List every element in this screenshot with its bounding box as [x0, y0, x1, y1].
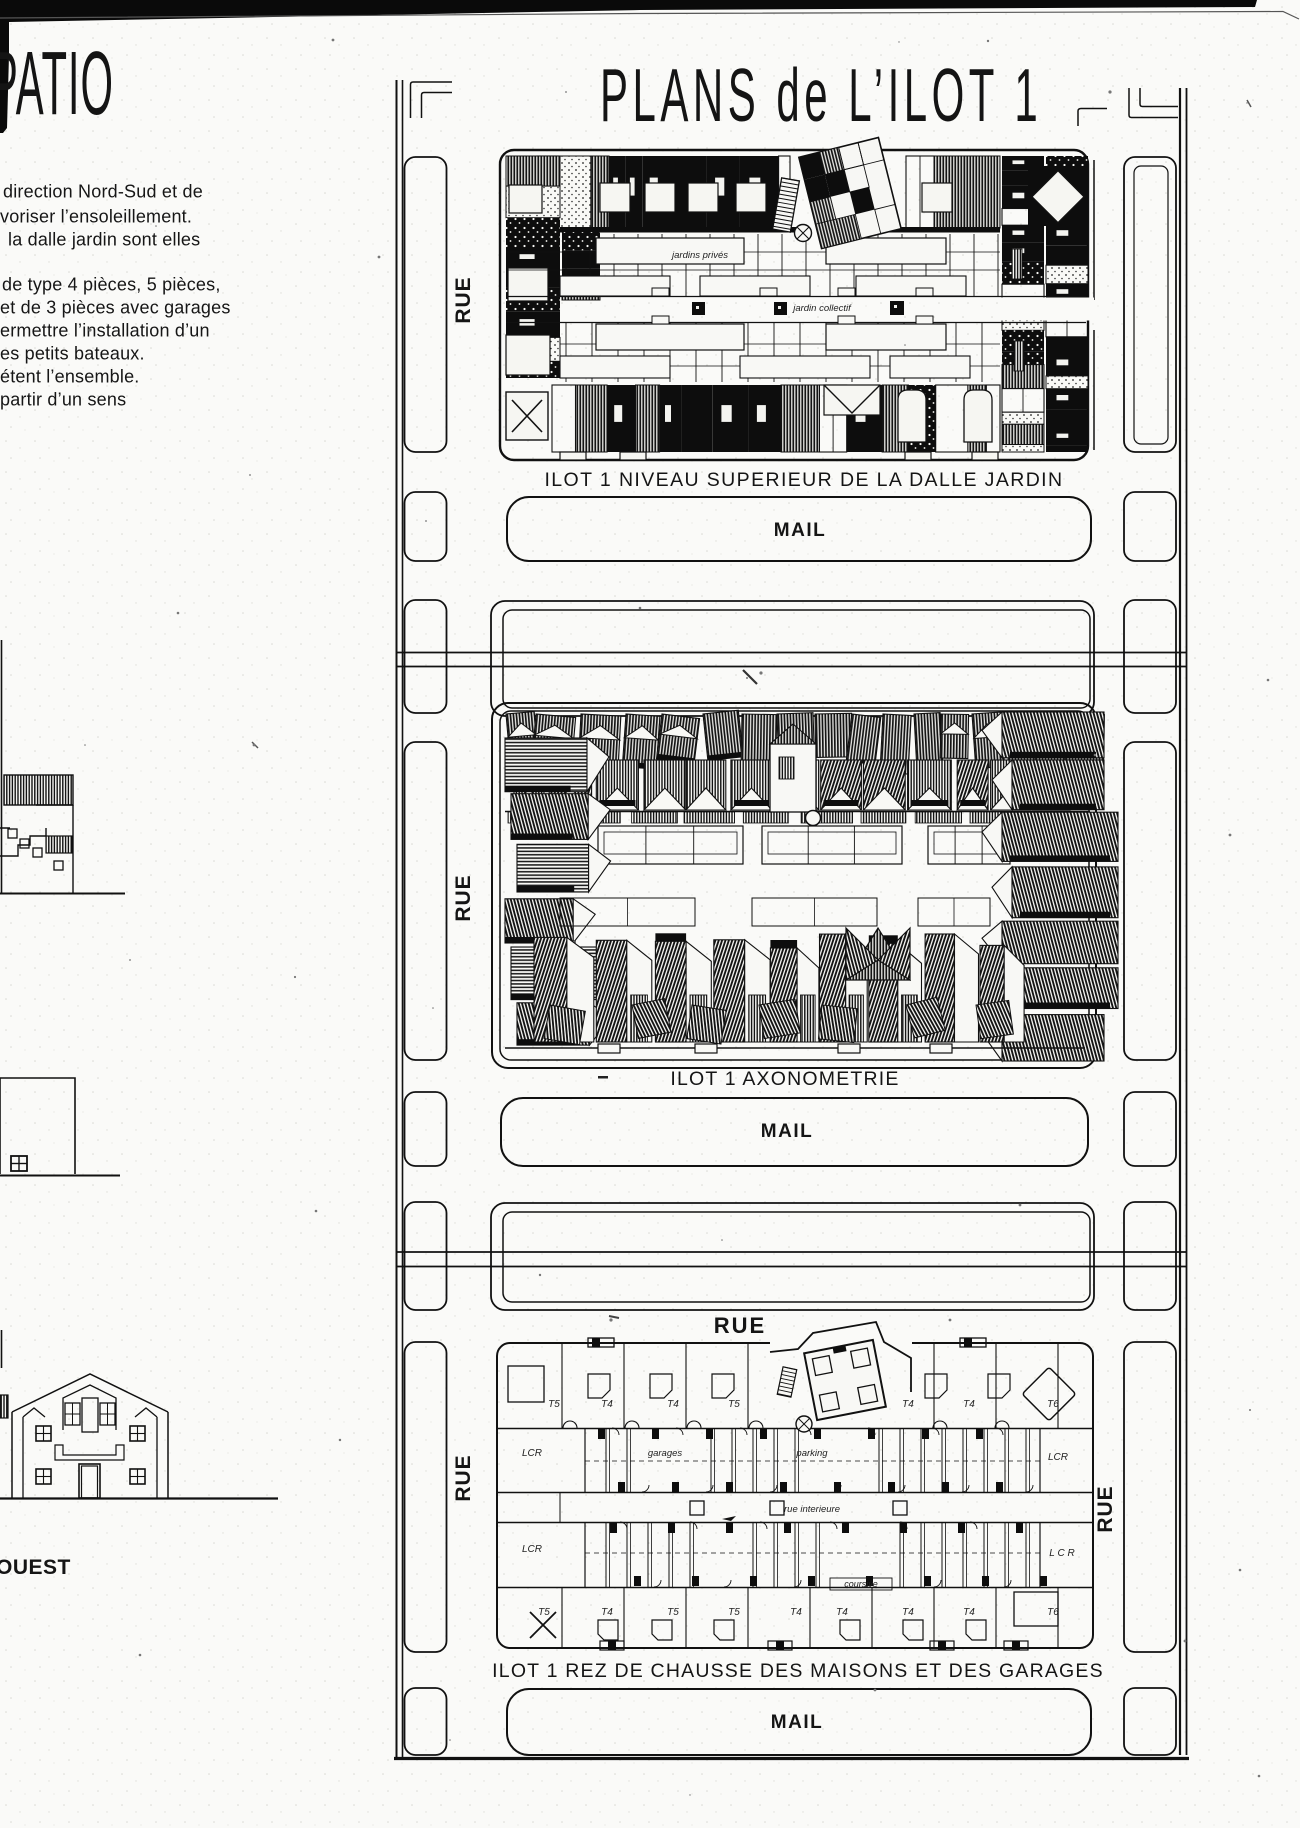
svg-text:PLANS de L’ILOT 1: PLANS de L’ILOT 1: [600, 53, 1042, 137]
svg-text:ILOT 1 NIVEAU SUPERIEUR DE LA: ILOT 1 NIVEAU SUPERIEUR DE LA DALLE JARD…: [544, 469, 1063, 491]
svg-text:MAIL: MAIL: [771, 1712, 823, 1733]
svg-text:T5: T5: [728, 1607, 740, 1618]
svg-text:direction Nord-Sud et de: direction Nord-Sud et de: [3, 182, 203, 202]
svg-text:voriser l’ensoleillement.: voriser l’ensoleillement.: [0, 207, 192, 227]
svg-text:RUE: RUE: [452, 874, 475, 921]
svg-text:MAIL: MAIL: [761, 1121, 813, 1142]
svg-text:et de 3 pièces avec garages: et de 3 pièces avec garages: [0, 298, 231, 318]
svg-text:T4: T4: [963, 1399, 975, 1410]
svg-text:LCR: LCR: [522, 1544, 542, 1555]
svg-text:T4: T4: [601, 1399, 613, 1410]
svg-text:T4: T4: [836, 1607, 848, 1618]
svg-text:PATIO: PATIO: [0, 32, 114, 133]
svg-text:coursive: coursive: [844, 1579, 878, 1589]
svg-text:parking: parking: [795, 1448, 828, 1459]
svg-text:T4: T4: [601, 1607, 613, 1618]
svg-text:étent l’ensemble.: étent l’ensemble.: [0, 367, 139, 387]
svg-text:T5: T5: [538, 1607, 550, 1618]
svg-text:T4: T4: [667, 1399, 679, 1410]
svg-text:RUE: RUE: [452, 276, 475, 323]
svg-text:RUE: RUE: [1094, 1485, 1117, 1532]
svg-text:T4: T4: [790, 1607, 802, 1618]
svg-text:RUE: RUE: [452, 1454, 475, 1501]
svg-text:T4: T4: [902, 1399, 914, 1410]
svg-text:jardins privés: jardins privés: [670, 250, 728, 261]
svg-text:L C R: L C R: [1049, 1548, 1074, 1559]
svg-text:jardin collectif: jardin collectif: [791, 303, 852, 314]
svg-text:T5: T5: [728, 1399, 740, 1410]
svg-text:ILOT 1 REZ DE CHAUSSE DES MAIS: ILOT 1 REZ DE CHAUSSE DES MAISONS ET DES…: [492, 1660, 1104, 1682]
svg-text:RUE: RUE: [714, 1313, 766, 1338]
svg-text:T6: T6: [1047, 1399, 1059, 1410]
svg-text:ermettre l’installation d’un: ermettre l’installation d’un: [0, 321, 210, 341]
svg-text:ILOT 1 AXONOMETRIE: ILOT 1 AXONOMETRIE: [670, 1068, 899, 1090]
svg-text:T4: T4: [963, 1607, 975, 1618]
svg-text:LCR: LCR: [522, 1448, 542, 1459]
svg-text:de type 4 pièces, 5 pièces,: de type 4 pièces, 5 pièces,: [2, 275, 221, 295]
svg-text:LCR: LCR: [1048, 1452, 1068, 1463]
svg-text:la dalle jardin sont elles: la dalle jardin sont elles: [8, 230, 200, 250]
svg-text:partir d’un sens: partir d’un sens: [0, 390, 126, 410]
svg-text:OUEST: OUEST: [0, 1556, 71, 1579]
svg-text:T4: T4: [902, 1607, 914, 1618]
svg-text:garages: garages: [648, 1448, 683, 1459]
svg-text:es petits bateaux.: es petits bateaux.: [0, 344, 145, 364]
svg-text:rue interieure: rue interieure: [784, 1504, 840, 1515]
svg-text:MAIL: MAIL: [774, 520, 826, 541]
svg-text:T5: T5: [667, 1607, 679, 1618]
svg-text:T5: T5: [548, 1399, 560, 1410]
